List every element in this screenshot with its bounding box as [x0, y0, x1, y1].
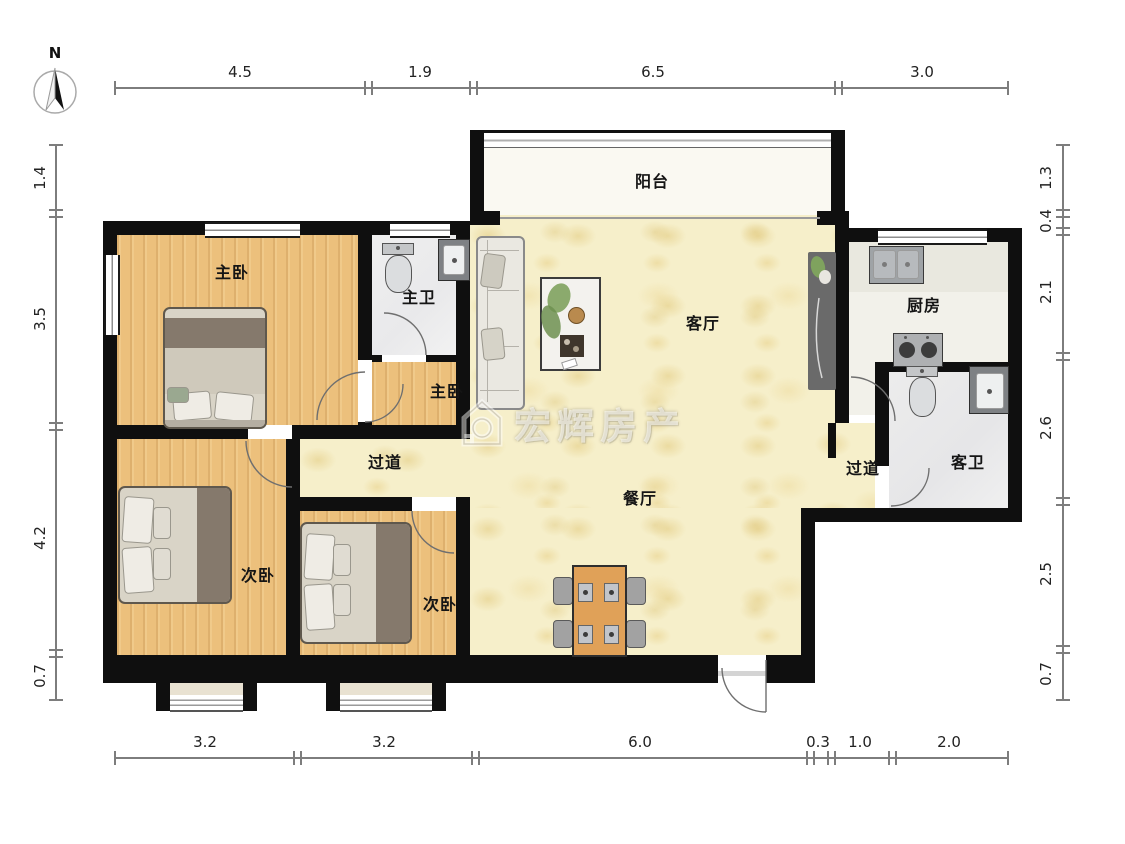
room-label-dining: 餐厅: [623, 485, 657, 509]
dim-top-0: 4.5: [228, 63, 252, 81]
compass-needle-light: [46, 68, 55, 110]
place-setting: [604, 625, 619, 644]
pillow: [121, 546, 154, 594]
stove: [893, 333, 943, 367]
dining-chair: [626, 620, 646, 648]
dim-top-1: 1.9: [408, 63, 432, 81]
wall: [470, 211, 500, 225]
dim-left-3: 0.7: [31, 664, 49, 688]
bed-blanket-fold: [376, 524, 410, 642]
door-opening: [382, 355, 426, 362]
room-label-hallway-right: 过道: [846, 455, 880, 479]
compass: N: [25, 40, 85, 130]
room-label-balcony: 阳台: [635, 168, 669, 192]
room-label-living: 客厅: [686, 310, 720, 334]
dim-right-0: 1.3: [1037, 166, 1055, 190]
wall: [470, 130, 484, 215]
remote: [561, 358, 578, 370]
dim-bottom-3: 0.3: [806, 733, 830, 751]
sofa-armrest-line: [480, 250, 519, 251]
tv-cabinet: [808, 252, 836, 390]
dim-right-4: 2.5: [1037, 562, 1055, 586]
burner: [899, 342, 915, 358]
coffee-table: [540, 277, 601, 371]
entrance-door-opening: [718, 655, 766, 683]
dim-right-5: 0.7: [1037, 662, 1055, 686]
pillow: [153, 507, 171, 539]
tv-plant-pot: [819, 270, 831, 284]
dim-top-3: 3.0: [910, 63, 934, 81]
room-label-master-bath: 主卫: [402, 284, 436, 308]
dim-right-1: 0.4: [1037, 209, 1055, 233]
pillow: [303, 583, 335, 631]
bed-blanket-fold: [197, 488, 230, 602]
room-label-master: 主卧: [215, 259, 249, 283]
bedroom3-bed: [300, 522, 412, 644]
dim-bottom-0: 3.2: [193, 733, 217, 751]
headboard: [165, 420, 265, 427]
toilet: [382, 243, 414, 255]
room-label-vestibule: 主卧: [430, 378, 464, 402]
bed-blanket-fold: [165, 318, 265, 348]
dim-right-3: 2.6: [1037, 416, 1055, 440]
wall: [456, 497, 470, 655]
balcony-window: [484, 130, 831, 148]
tray: [560, 335, 584, 357]
bay-window-glass: [340, 695, 432, 712]
wall: [835, 211, 849, 423]
pillow: [214, 391, 255, 423]
dining-chair: [626, 577, 646, 605]
bathroom-sink: [969, 366, 1009, 414]
entrance-threshold: [718, 671, 766, 676]
toilet: [906, 366, 938, 377]
sofa-pillow: [480, 253, 507, 290]
sink-basin: [873, 250, 896, 279]
pillow: [153, 548, 171, 580]
kitchen-sink: [869, 246, 924, 284]
sofa-armrest-line: [480, 390, 519, 391]
window: [390, 222, 450, 238]
stove-knob: [926, 336, 929, 339]
room-label-guest-bath: 客卫: [951, 449, 985, 473]
wall: [801, 508, 815, 683]
place-setting: [578, 583, 593, 602]
room-label-hallway-left: 过道: [368, 449, 402, 473]
sofa-pillow: [480, 327, 505, 361]
pillow: [333, 544, 351, 576]
dining-chair: [553, 577, 573, 605]
wall: [103, 655, 815, 683]
dim-bottom-2: 6.0: [628, 733, 652, 751]
pillow: [333, 584, 351, 616]
dim-bottom-4: 1.0: [848, 733, 872, 751]
wall: [801, 508, 1022, 522]
dining-chair: [553, 620, 573, 648]
dim-left-1: 3.5: [31, 307, 49, 331]
bay-window-glass: [170, 695, 243, 712]
stove-knob: [904, 336, 907, 339]
bedroom2-bed: [118, 486, 232, 604]
master-bed: [163, 307, 267, 429]
room-label-bedroom2: 次卧: [241, 562, 275, 586]
cup: [568, 307, 585, 324]
accent-pillow: [167, 387, 189, 403]
wall: [831, 130, 845, 215]
sofa-seat-line: [488, 290, 519, 291]
dim-bottom-1: 3.2: [372, 733, 396, 751]
dim-left-0: 1.4: [31, 166, 49, 190]
floor-plan: 阳台 主卧 主卫 主卧 客厅 厨房 过道 过道 客卫 餐厅 次卧 次卧 宏辉房产…: [0, 0, 1125, 844]
compass-needle-dark: [55, 68, 64, 110]
tray-item: [564, 339, 570, 345]
sink-basin: [976, 373, 1004, 409]
place-setting: [604, 583, 619, 602]
door-opening: [849, 415, 875, 423]
dim-top-2: 6.5: [641, 63, 665, 81]
dim-right-2: 2.1: [1037, 280, 1055, 304]
room-kitchen-floor-strip: [849, 362, 875, 415]
place-setting: [578, 625, 593, 644]
room-label-bedroom3: 次卧: [423, 591, 457, 615]
pillow: [121, 496, 154, 544]
room-label-kitchen: 厨房: [907, 292, 941, 316]
tray-item: [573, 346, 579, 352]
door-opening: [358, 360, 372, 422]
toilet-bowl: [909, 377, 936, 417]
dim-left-2: 4.2: [31, 526, 49, 550]
bathroom-sink: [438, 239, 470, 281]
door-opening: [412, 497, 456, 511]
wall: [1008, 228, 1022, 522]
compass-n-label: N: [49, 44, 62, 62]
wall: [286, 439, 300, 655]
dim-bottom-5: 2.0: [937, 733, 961, 751]
dining-table: [572, 565, 627, 657]
sofa: [476, 236, 525, 410]
wall: [828, 423, 836, 458]
window: [104, 255, 120, 335]
window: [205, 222, 300, 238]
burner: [921, 342, 937, 358]
pillow: [303, 533, 335, 581]
sink-basin: [443, 245, 465, 275]
window: [878, 229, 987, 245]
sink-basin: [897, 250, 919, 279]
